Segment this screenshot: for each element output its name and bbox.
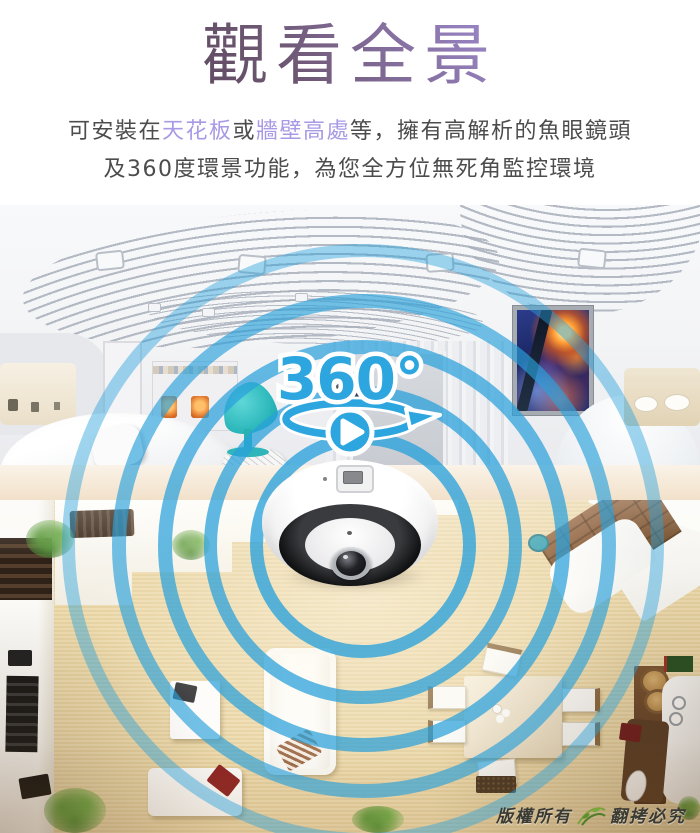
sink	[634, 396, 658, 412]
subtitle-line-1: 可安裝在天花板或牆壁高處等，擁有高解析的魚眼鏡頭	[0, 113, 700, 151]
camera-lens	[336, 551, 366, 576]
subtitle-text: 或	[232, 119, 256, 144]
panorama-photo: 360° 版權所有 翻拷必究	[0, 205, 700, 833]
subtitle-line-2: 及360度環景功能，為您全方位無死角監控環境	[0, 151, 700, 189]
badge-360: 360°	[248, 333, 452, 463]
camera-reset-dot	[323, 477, 327, 481]
page-title: 觀看全景	[0, 18, 700, 94]
badge-360-text: 360°	[277, 345, 423, 413]
page: 觀看全景 可安裝在天花板或牆壁高處等，擁有高解析的魚眼鏡頭 及360度環景功能，…	[0, 0, 700, 833]
copyright-text-left: 版權所有	[496, 802, 572, 827]
faucet-silhouettes	[8, 399, 18, 411]
bathroom-vanity	[0, 363, 76, 425]
subtitle-text: 可安裝在	[68, 119, 162, 144]
lens-glint	[343, 555, 348, 559]
subtitle-highlight-wall: 牆壁高處	[256, 119, 350, 144]
copyright-text-right: 翻拷必究	[610, 802, 686, 827]
ceiling-light-small	[148, 303, 161, 312]
camera-port-slot	[343, 471, 363, 484]
leaf-decoration-icon	[576, 804, 606, 826]
copyright: 版權所有 翻拷必究	[496, 802, 686, 827]
ceiling-light	[577, 248, 607, 270]
ceiling-light	[95, 250, 125, 272]
subtitle: 可安裝在天花板或牆壁高處等，擁有高解析的魚眼鏡頭 及360度環景功能，為您全方位…	[0, 113, 700, 189]
subtitle-highlight-ceiling: 天花板	[162, 119, 233, 144]
subtitle-text: 等，擁有高解析的魚眼鏡頭	[350, 119, 632, 144]
play-button[interactable]	[328, 410, 372, 454]
camera-mic-dot	[347, 531, 352, 535]
sink	[664, 394, 690, 411]
